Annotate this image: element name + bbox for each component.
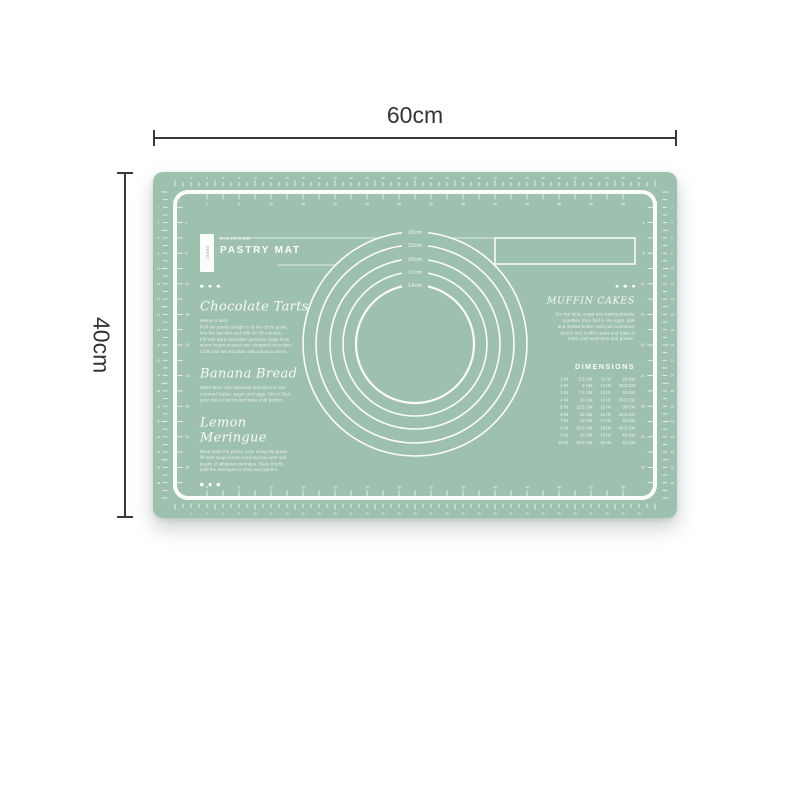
svg-text:48: 48	[557, 486, 561, 490]
svg-text:32: 32	[670, 435, 674, 439]
svg-text:18: 18	[317, 176, 321, 180]
svg-text:22: 22	[349, 176, 353, 180]
svg-text:12: 12	[269, 512, 273, 516]
svg-text:28: 28	[670, 404, 674, 408]
svg-text:2: 2	[671, 205, 673, 209]
svg-text:12: 12	[269, 176, 273, 180]
svg-text:28: 28	[397, 202, 401, 206]
conversion-table: 1 IN2.5 CM11 IN28 CM2 IN5 CM12 IN30.5 CM…	[491, 377, 635, 445]
table-cell: 16 IN	[600, 413, 610, 417]
recipe-text: Blind bake the pastry case using the gui…	[200, 449, 315, 474]
svg-text:56: 56	[621, 202, 625, 206]
accent-dots-right-top	[491, 284, 635, 288]
recipe-text: Makes 8 tartsRoll the pastry dough to fi…	[200, 319, 315, 356]
svg-text:20: 20	[333, 202, 337, 206]
recipe-section: Banana BreadMash three ripe bananas and …	[200, 366, 315, 404]
svg-text:20: 20	[670, 343, 674, 347]
svg-text:24: 24	[641, 374, 645, 378]
svg-text:54: 54	[605, 176, 609, 180]
recipe-section: Chocolate TartsMakes 8 tartsRoll the pas…	[200, 299, 315, 355]
pastry-mat: 2468101214161820222426283032343638404244…	[153, 172, 677, 518]
ruler-right-outer: 2468101214161820222426283032343638	[663, 192, 674, 498]
svg-text:32: 32	[157, 435, 161, 439]
svg-text:42: 42	[509, 512, 513, 516]
brand-vertical-text: SWEET	[205, 246, 208, 260]
logo-title: PASTRY MAT	[220, 245, 301, 256]
table-cell: 25.5 CM	[576, 441, 592, 445]
svg-text:52: 52	[589, 176, 593, 180]
svg-text:36: 36	[461, 512, 465, 516]
svg-text:34: 34	[445, 176, 449, 180]
svg-text:8: 8	[158, 251, 160, 255]
table-cell: 2.5 CM	[576, 377, 592, 381]
svg-text:4: 4	[158, 221, 160, 225]
table-cell: 1 IN	[558, 377, 568, 381]
ruler-left-outer: 2468101214161820222426283032343638	[157, 192, 168, 498]
svg-text:16: 16	[641, 313, 645, 317]
svg-text:22: 22	[670, 358, 674, 362]
dot-icon	[200, 285, 203, 288]
svg-text:6: 6	[671, 236, 673, 240]
svg-text:48: 48	[557, 512, 561, 516]
table-cell: 43 CM	[619, 420, 635, 424]
svg-text:18: 18	[670, 328, 674, 332]
table-cell: 23 CM	[576, 434, 592, 438]
svg-text:8: 8	[186, 251, 188, 255]
svg-text:16: 16	[301, 202, 305, 206]
table-cell: 19 IN	[600, 434, 610, 438]
ruler-top-inner: 48121620242832364044485256	[206, 194, 625, 206]
svg-text:28: 28	[397, 512, 401, 516]
logo-subtitle: SILICONE	[220, 237, 285, 242]
svg-text:16: 16	[301, 176, 305, 180]
svg-text:44: 44	[525, 486, 529, 490]
svg-text:26: 26	[157, 389, 161, 393]
svg-text:46: 46	[541, 512, 545, 516]
svg-text:52: 52	[589, 486, 593, 490]
circle-guide	[356, 285, 474, 403]
svg-text:48: 48	[557, 202, 561, 206]
svg-text:54: 54	[605, 512, 609, 516]
svg-text:20: 20	[333, 512, 337, 516]
recipe-title: Lemon Meringue	[200, 415, 315, 445]
svg-text:50: 50	[573, 512, 577, 516]
svg-text:22: 22	[157, 358, 161, 362]
muffin-title: MUFFIN CAKES	[491, 296, 635, 307]
height-dimension-line	[124, 172, 126, 518]
svg-text:50: 50	[573, 176, 577, 180]
svg-text:36: 36	[461, 176, 465, 180]
svg-text:24: 24	[365, 202, 369, 206]
dot-icon	[200, 483, 203, 486]
svg-text:58: 58	[637, 176, 641, 180]
circle-guide	[343, 272, 487, 416]
svg-text:38: 38	[670, 481, 674, 485]
table-cell: 18 IN	[600, 427, 610, 431]
svg-text:2: 2	[190, 176, 192, 180]
svg-text:14: 14	[670, 297, 674, 301]
table-cell: 13 IN	[600, 391, 610, 395]
muffin-text: Stir the flour, sugar and baking powdert…	[491, 312, 635, 343]
svg-text:14: 14	[285, 512, 289, 516]
svg-text:16: 16	[670, 313, 674, 317]
svg-text:14: 14	[285, 176, 289, 180]
svg-text:6: 6	[222, 176, 224, 180]
svg-text:18: 18	[317, 512, 321, 516]
circle-size-label: 23cm	[408, 243, 422, 249]
table-cell: 20.5 CM	[576, 427, 592, 431]
table-cell: 48 CM	[619, 434, 635, 438]
ruler-left-inner: 4812162024283236	[177, 207, 189, 482]
table-cell: 10 CM	[576, 398, 592, 402]
recipes-column: Chocolate TartsMakes 8 tartsRoll the pas…	[200, 284, 315, 487]
svg-text:16: 16	[157, 313, 161, 317]
svg-text:36: 36	[670, 466, 674, 470]
svg-text:40: 40	[493, 176, 497, 180]
svg-text:40: 40	[493, 486, 497, 490]
svg-text:34: 34	[157, 450, 161, 454]
svg-text:20: 20	[641, 343, 645, 347]
svg-text:4: 4	[206, 176, 208, 180]
svg-text:4: 4	[206, 512, 208, 516]
svg-text:36: 36	[461, 202, 465, 206]
svg-text:24: 24	[157, 374, 161, 378]
circle-size-label: 20cm	[408, 257, 422, 263]
table-cell: 33 CM	[619, 391, 635, 395]
svg-text:36: 36	[157, 466, 161, 470]
svg-text:44: 44	[525, 512, 529, 516]
table-cell: 10 IN	[558, 441, 568, 445]
svg-text:2: 2	[158, 205, 160, 209]
table-cell: 12.5 CM	[576, 406, 592, 410]
svg-text:28: 28	[157, 404, 161, 408]
svg-text:38: 38	[477, 512, 481, 516]
svg-text:4: 4	[206, 202, 208, 206]
svg-text:58: 58	[637, 512, 641, 516]
table-cell: 40.5 CM	[619, 413, 635, 417]
svg-text:28: 28	[397, 176, 401, 180]
dot-icon	[217, 285, 220, 288]
svg-text:44: 44	[525, 202, 529, 206]
svg-text:22: 22	[349, 512, 353, 516]
svg-text:12: 12	[641, 282, 645, 286]
recipe-title: Chocolate Tarts	[200, 299, 315, 314]
dot-icon	[217, 483, 220, 486]
svg-text:10: 10	[253, 512, 257, 516]
svg-text:38: 38	[157, 481, 161, 485]
svg-text:18: 18	[157, 328, 161, 332]
svg-text:56: 56	[621, 512, 625, 516]
svg-text:14: 14	[157, 297, 161, 301]
svg-text:28: 28	[186, 404, 190, 408]
svg-text:20: 20	[333, 176, 337, 180]
accent-dots-left-top	[200, 284, 315, 288]
svg-text:24: 24	[365, 486, 369, 490]
svg-text:30: 30	[157, 420, 161, 424]
svg-text:20: 20	[186, 343, 190, 347]
table-cell: 6 IN	[558, 413, 568, 417]
svg-text:30: 30	[413, 176, 417, 180]
table-cell: 11 IN	[600, 377, 610, 381]
table-cell: 15 CM	[576, 413, 592, 417]
accent-dots-left-bottom	[200, 483, 315, 487]
svg-text:56: 56	[621, 176, 625, 180]
table-cell: 18 CM	[576, 420, 592, 424]
svg-text:32: 32	[429, 202, 433, 206]
svg-text:6: 6	[158, 236, 160, 240]
svg-text:44: 44	[525, 176, 529, 180]
svg-text:32: 32	[641, 435, 645, 439]
svg-text:46: 46	[541, 176, 545, 180]
measure-box	[495, 238, 635, 264]
svg-text:10: 10	[253, 176, 257, 180]
table-cell: 28 CM	[619, 377, 635, 381]
svg-text:36: 36	[641, 466, 645, 470]
table-cell: 20 IN	[600, 441, 610, 445]
dot-icon	[632, 285, 635, 288]
table-cell: 7 IN	[558, 420, 568, 424]
svg-text:26: 26	[381, 512, 385, 516]
table-cell: 35.5 CM	[619, 398, 635, 402]
svg-text:4: 4	[643, 221, 645, 225]
table-cell: 8 IN	[558, 427, 568, 431]
svg-text:32: 32	[429, 512, 433, 516]
table-cell: 38 CM	[619, 406, 635, 410]
svg-text:8: 8	[643, 251, 645, 255]
table-cell: 45.5 CM	[619, 427, 635, 431]
dot-icon	[208, 483, 211, 486]
dimensions-title: DIMENSIONS	[491, 363, 635, 371]
table-cell: 17 IN	[600, 420, 610, 424]
svg-text:6: 6	[222, 512, 224, 516]
circle-size-label: 14cm	[408, 283, 422, 289]
svg-text:26: 26	[670, 389, 674, 393]
svg-text:48: 48	[557, 176, 561, 180]
svg-text:32: 32	[429, 176, 433, 180]
svg-text:12: 12	[186, 282, 190, 286]
table-cell: 30.5 CM	[619, 384, 635, 388]
svg-text:10: 10	[670, 267, 674, 271]
svg-text:52: 52	[589, 202, 593, 206]
table-cell: 5 IN	[558, 406, 568, 410]
svg-text:12: 12	[269, 202, 273, 206]
svg-text:8: 8	[238, 176, 240, 180]
recipe-text: Mash three ripe bananas and fold into th…	[200, 386, 315, 404]
svg-text:10: 10	[157, 267, 161, 271]
table-cell: 51 CM	[619, 441, 635, 445]
info-column: MUFFIN CAKES Stir the flour, sugar and b…	[491, 284, 635, 445]
svg-text:36: 36	[461, 486, 465, 490]
svg-text:8: 8	[238, 202, 240, 206]
svg-text:36: 36	[186, 466, 190, 470]
table-cell: 7.5 CM	[576, 391, 592, 395]
ruler-top-outer: 2468101214161820222426283032343638404244…	[175, 176, 655, 187]
svg-text:24: 24	[186, 374, 190, 378]
svg-text:32: 32	[186, 435, 190, 439]
svg-text:12: 12	[670, 282, 674, 286]
table-cell: 4 IN	[558, 398, 568, 402]
svg-text:30: 30	[413, 512, 417, 516]
height-dimension-label: 40cm	[84, 172, 118, 518]
table-cell: 9 IN	[558, 434, 568, 438]
ruler-bottom-outer: 2468101214161820222426283032343638404244…	[175, 504, 655, 516]
svg-text:16: 16	[301, 512, 305, 516]
svg-text:28: 28	[397, 486, 401, 490]
width-dimension-line	[153, 137, 677, 139]
dot-icon	[208, 285, 211, 288]
svg-text:16: 16	[186, 313, 190, 317]
width-dimension-label: 60cm	[153, 102, 677, 129]
svg-text:56: 56	[621, 486, 625, 490]
table-cell: 5 CM	[576, 384, 592, 388]
dot-icon	[615, 285, 618, 288]
circle-size-label: 26cm	[408, 230, 422, 236]
table-cell: 2 IN	[558, 384, 568, 388]
svg-text:8: 8	[238, 512, 240, 516]
table-cell: 15 IN	[600, 406, 610, 410]
svg-text:12: 12	[157, 282, 161, 286]
svg-text:24: 24	[365, 512, 369, 516]
recipe-sections: Chocolate TartsMakes 8 tartsRoll the pas…	[200, 299, 315, 474]
svg-text:2: 2	[190, 512, 192, 516]
table-cell: 14 IN	[600, 398, 610, 402]
svg-text:34: 34	[670, 450, 674, 454]
svg-text:26: 26	[381, 176, 385, 180]
svg-text:40: 40	[493, 512, 497, 516]
ruler-bottom-inner: 48121620242832364044485256	[206, 486, 625, 497]
svg-text:30: 30	[670, 420, 674, 424]
svg-text:20: 20	[333, 486, 337, 490]
product-image: 60cm 40cm 246810121416182022242628303234…	[0, 0, 800, 800]
svg-text:32: 32	[429, 486, 433, 490]
svg-text:4: 4	[671, 221, 673, 225]
svg-text:42: 42	[509, 176, 513, 180]
table-cell: 3 IN	[558, 391, 568, 395]
brand-tab: SWEET	[200, 234, 214, 272]
svg-text:52: 52	[589, 512, 593, 516]
svg-text:34: 34	[445, 512, 449, 516]
svg-text:20: 20	[157, 343, 161, 347]
table-cell: 12 IN	[600, 384, 610, 388]
svg-text:8: 8	[671, 251, 673, 255]
circle-size-label: 17cm	[408, 270, 422, 276]
svg-text:4: 4	[186, 221, 188, 225]
ruler-right-inner: 4812162024283236	[641, 207, 653, 482]
svg-text:38: 38	[477, 176, 481, 180]
recipe-section: Lemon MeringueBlind bake the pastry case…	[200, 415, 315, 474]
svg-text:24: 24	[670, 374, 674, 378]
svg-text:28: 28	[641, 404, 645, 408]
logo-text: SILICONE PASTRY MAT	[220, 237, 301, 256]
svg-text:24: 24	[365, 176, 369, 180]
recipe-title: Banana Bread	[200, 366, 315, 381]
dot-icon	[623, 285, 626, 288]
svg-text:40: 40	[493, 202, 497, 206]
